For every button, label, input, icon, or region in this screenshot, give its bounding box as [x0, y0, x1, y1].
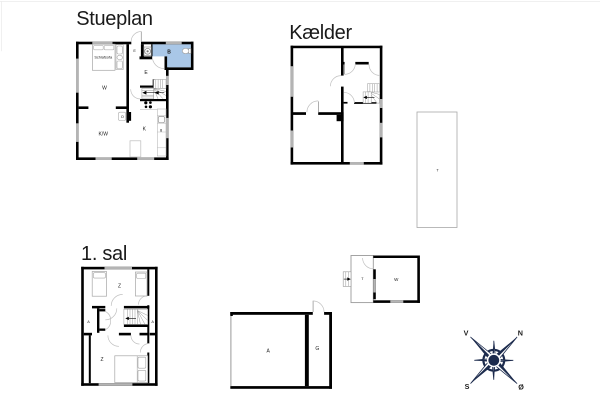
svg-text:Stueplan: Stueplan	[76, 8, 153, 30]
svg-text:Ø: Ø	[518, 382, 524, 391]
svg-text:1. sal: 1. sal	[81, 243, 127, 265]
svg-text:K/W: K/W	[98, 132, 108, 138]
svg-text:Schlafsofa: Schlafsofa	[94, 56, 113, 60]
svg-text:W: W	[394, 277, 399, 282]
svg-text:Kælder: Kælder	[289, 22, 352, 44]
svg-text:S: S	[465, 382, 470, 391]
svg-text:E: E	[133, 49, 136, 53]
svg-text:Z: Z	[118, 283, 121, 289]
svg-text:A: A	[87, 320, 90, 324]
svg-text:g: g	[160, 128, 162, 132]
svg-text:W: W	[102, 85, 107, 91]
svg-text:Z: Z	[100, 357, 103, 363]
svg-text:B: B	[167, 49, 171, 55]
svg-text:V: V	[464, 329, 469, 338]
svg-text:O: O	[121, 115, 124, 119]
svg-text:N: N	[518, 329, 523, 338]
svg-text:G: G	[315, 346, 319, 352]
